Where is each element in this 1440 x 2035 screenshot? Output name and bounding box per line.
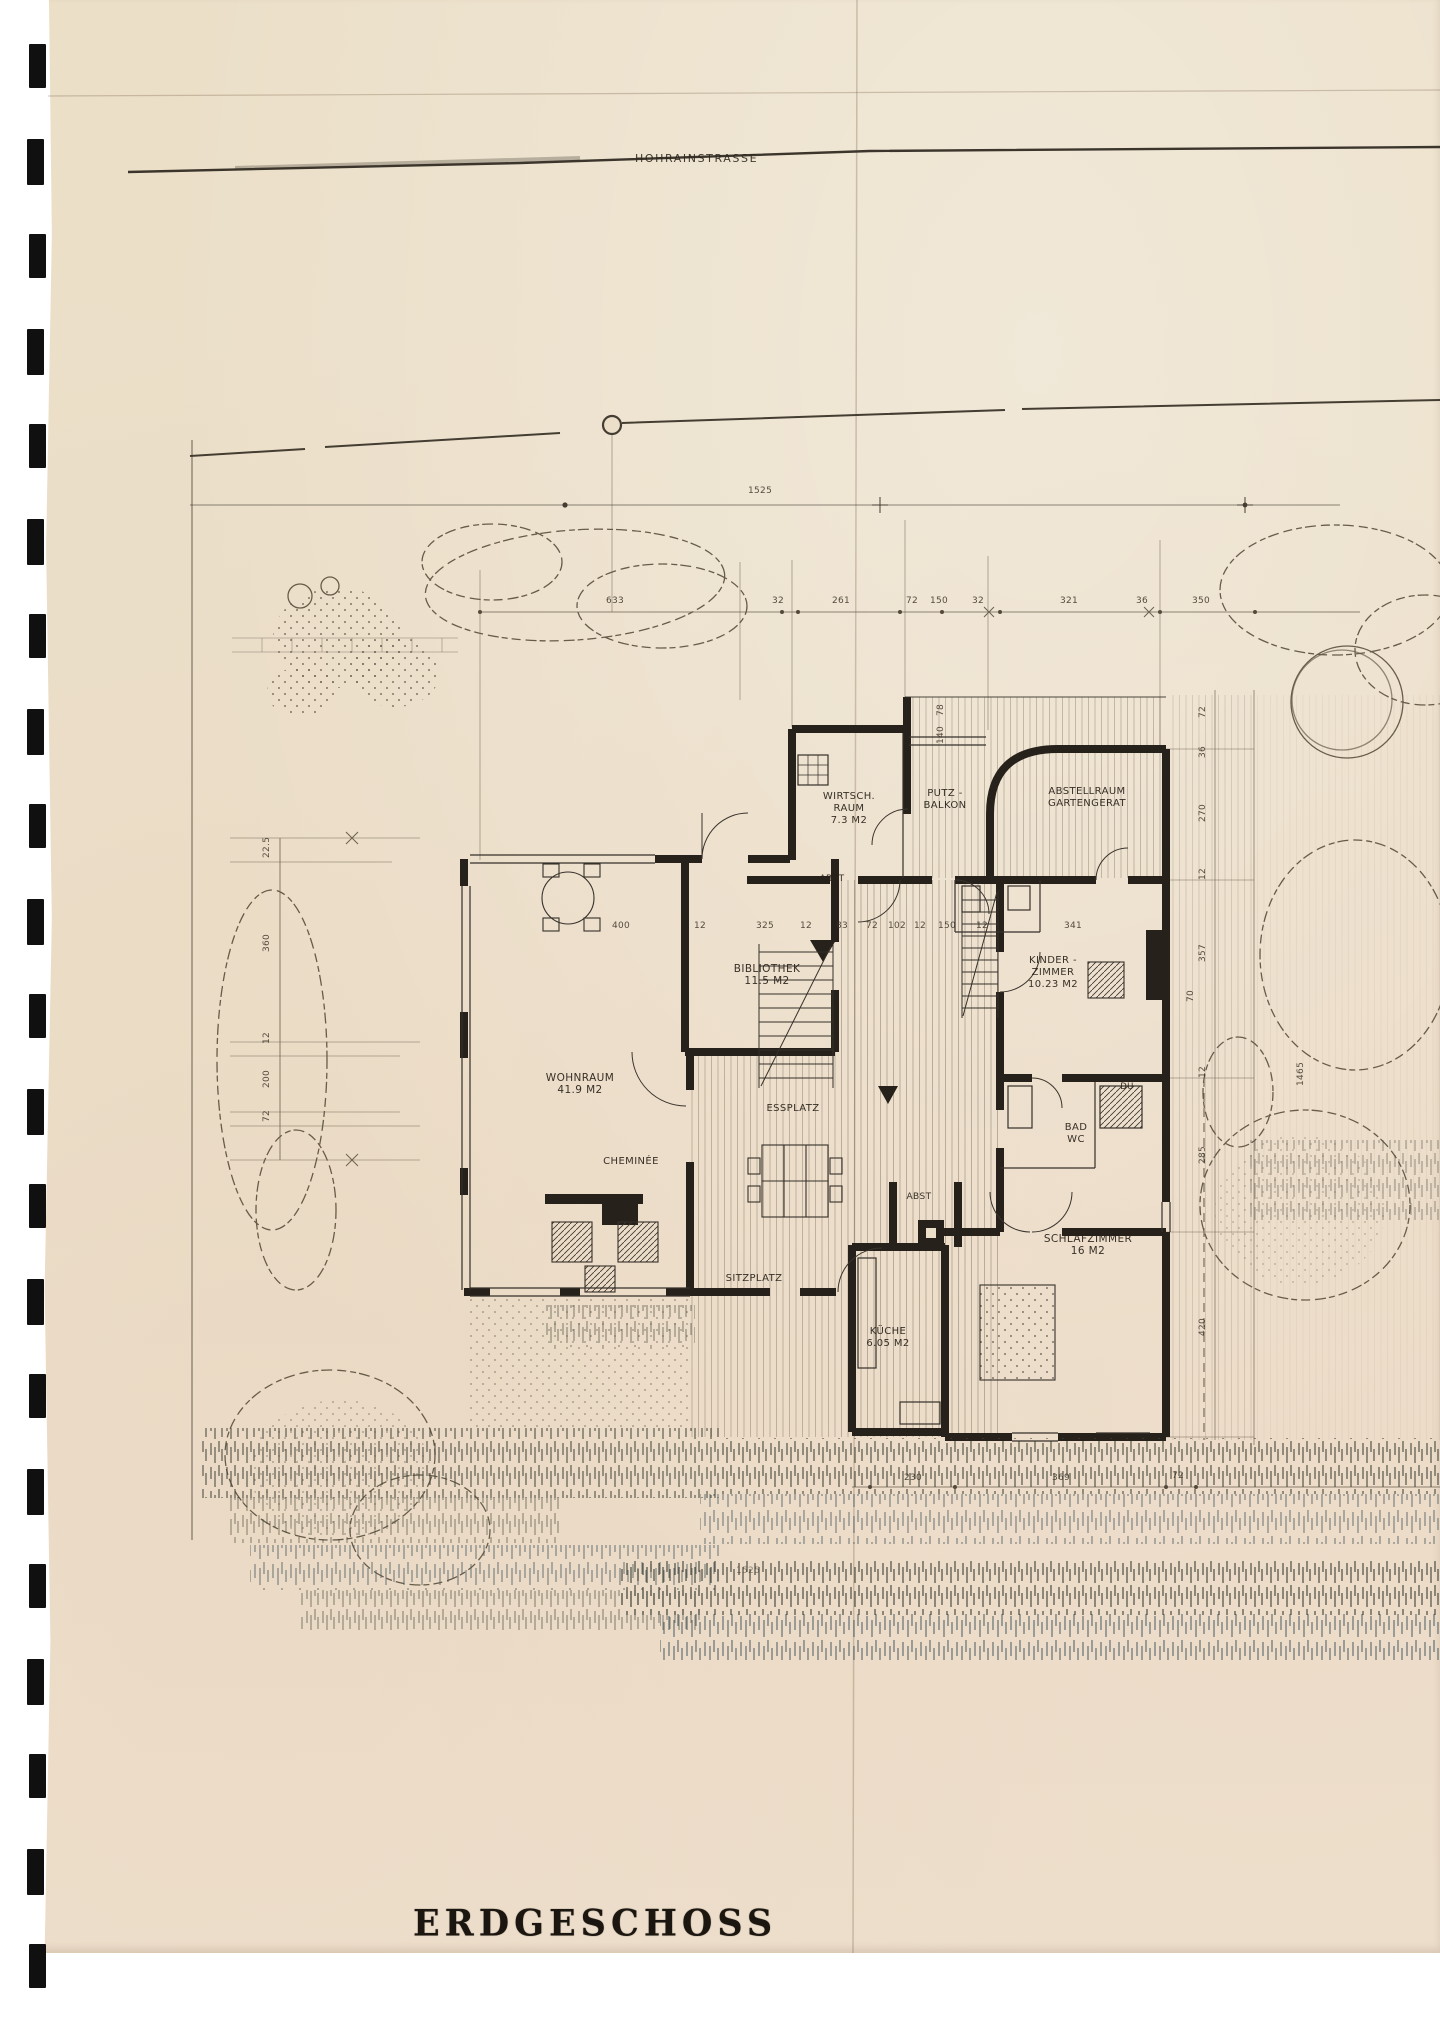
sheet-title: ERDGESCHOSS [413,1902,777,1945]
floor-plan-drawing [0,0,1440,2035]
street-line [128,147,1440,172]
street-name-label: HOHRAINSTRASSE [635,152,758,165]
scanned-floor-plan-sheet: HOHRAINSTRASSE WIRTSCH. RAUM7.3 M2PUTZ -… [0,0,1440,2035]
